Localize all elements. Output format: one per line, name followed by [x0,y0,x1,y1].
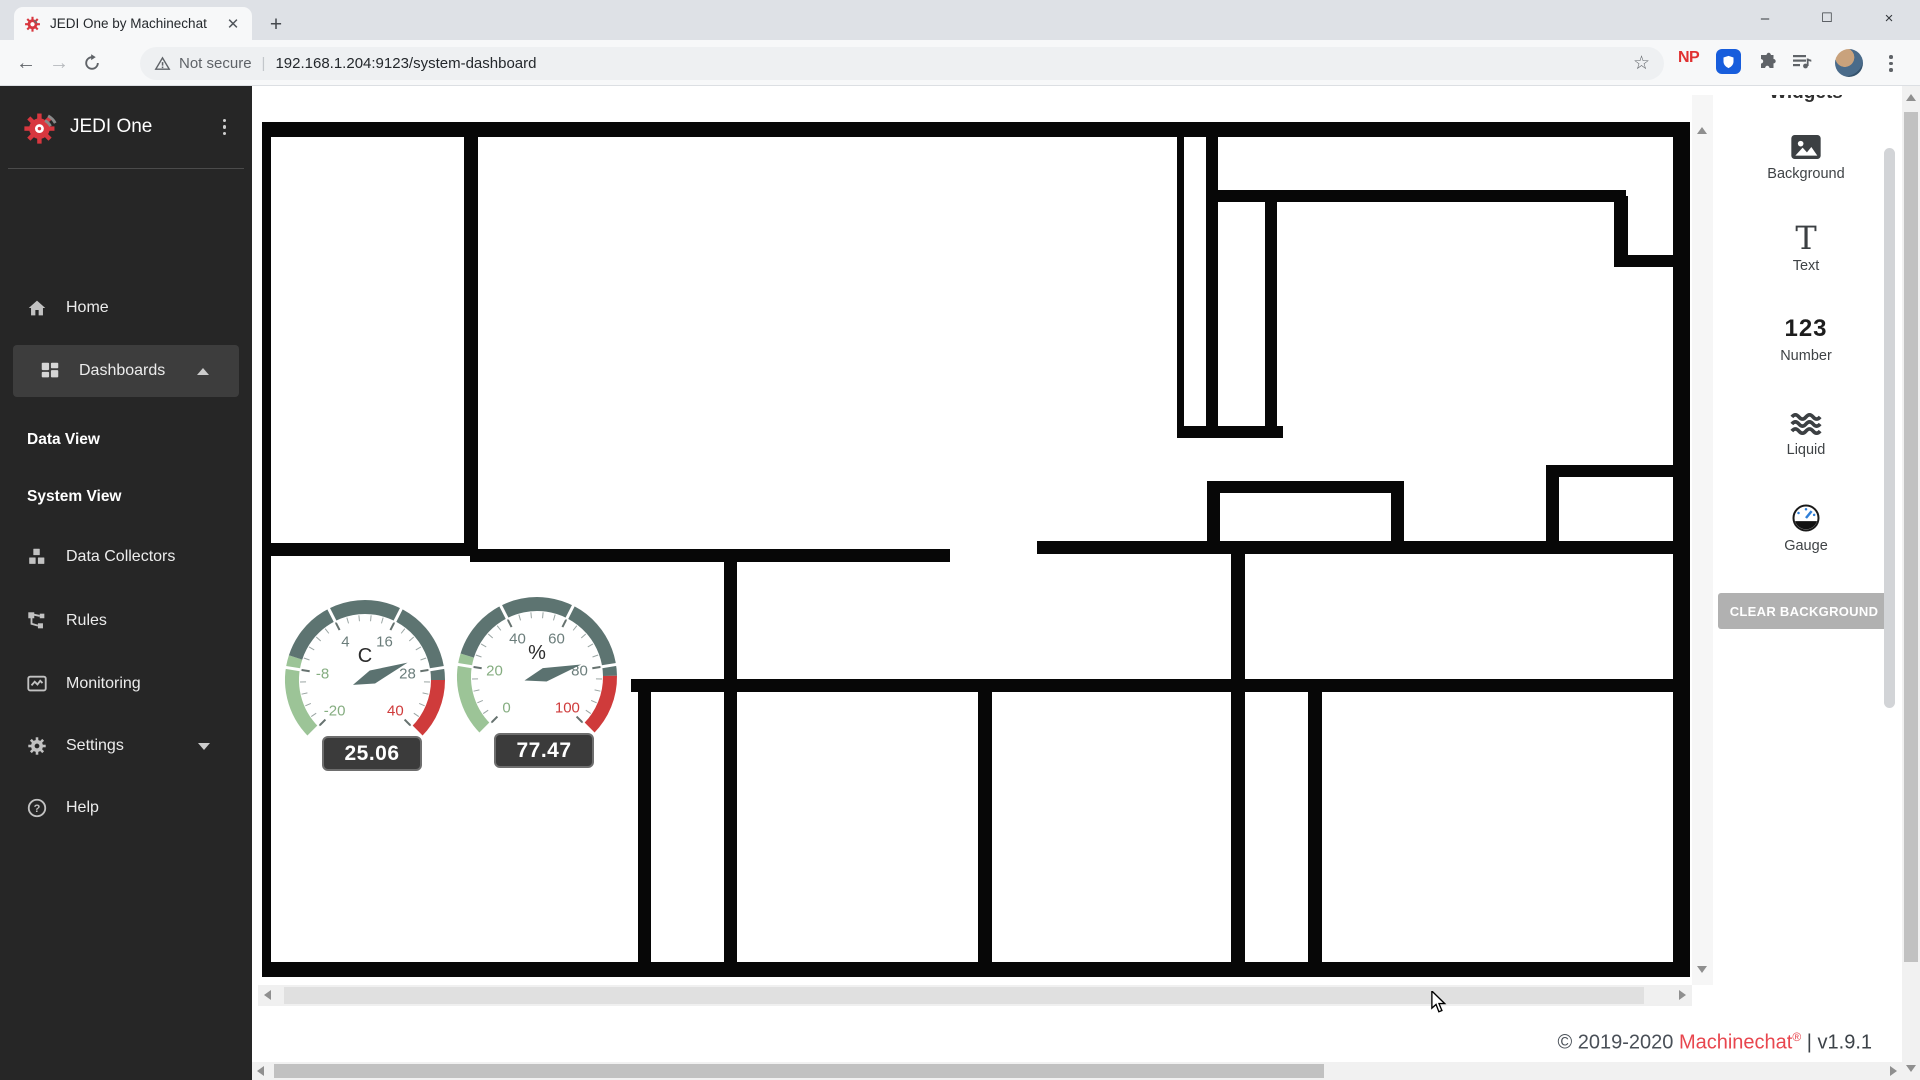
svg-text:28: 28 [399,665,416,682]
sidebar-item-label: Settings [66,737,124,755]
svg-text:C: C [358,645,372,667]
sidebar-item-label: Data Collectors [66,548,175,566]
scroll-down-icon[interactable] [1697,966,1707,973]
sidebar-item-label: Rules [66,612,107,630]
app-version: | v1.9.1 [1801,1032,1872,1054]
security-status-label: Not secure [179,55,252,72]
svg-text:-8: -8 [316,665,329,682]
waves-icon [1789,411,1823,437]
page-vertical-scrollbar[interactable] [1902,86,1920,1080]
widgets-panel: Widgets Background T Text 123 Number [1716,95,1896,108]
scroll-right-icon[interactable] [1679,990,1686,1000]
minimize-button[interactable]: – [1734,10,1796,27]
scroll-down-icon[interactable] [1906,1065,1916,1072]
scroll-up-icon[interactable] [1906,94,1916,101]
url-text[interactable]: 192.168.1.204:9123/system-dashboard [275,55,536,72]
rules-flow-icon [24,610,50,632]
app-name: JEDI One [70,116,152,138]
canvas-horizontal-scrollbar[interactable] [258,985,1692,1006]
not-secure-warning-icon[interactable] [154,55,171,72]
widget-gauge[interactable]: Gauge [1716,503,1896,554]
browser-titlebar: JEDI One by Machinechat ✕ + – ☐ × [0,0,1920,40]
shield-extension-icon[interactable] [1716,49,1741,74]
number-icon: 123 [1716,315,1896,343]
sidebar-menu-kebab-icon[interactable] [223,119,227,136]
widget-text[interactable]: T Text [1716,223,1896,274]
canvas-vertical-scrollbar[interactable] [1692,95,1713,985]
jedi-one-logo-gear-icon [22,108,60,146]
floorplan-background-image [258,95,1692,985]
forward-icon[interactable]: → [45,49,73,77]
jedi-one-favicon-gear-icon [24,15,41,32]
sidebar-divider [8,168,244,169]
browser-window: JEDI One by Machinechat ✕ + – ☐ × ← → [0,0,1920,1080]
footer-copyright: © 2019-2020 Machinechat® | v1.9.1 [1557,1030,1872,1055]
sidebar-item-settings[interactable]: Settings [0,722,252,770]
dashboard-canvas[interactable]: -20-84162840C 020406080100% 25.06 77.47 … [252,86,1902,1080]
reload-icon[interactable] [78,49,106,77]
home-icon [24,297,50,319]
svg-text:60: 60 [548,631,565,648]
sidebar-item-monitoring[interactable]: Monitoring [0,660,252,708]
maximize-button[interactable]: ☐ [1796,10,1858,26]
address-bar[interactable]: Not secure | 192.168.1.204:9123/system-d… [140,47,1664,80]
sidebar-item-dashboards[interactable]: Dashboards [13,345,239,397]
scrollbar-thumb[interactable] [1904,112,1918,962]
sidebar-item-data-view[interactable]: Data View [0,416,252,464]
sidebar-item-label: Help [66,799,99,817]
svg-text:16: 16 [376,634,393,651]
page-horizontal-scrollbar[interactable] [252,1062,1902,1080]
widget-background[interactable]: Background [1716,133,1896,182]
scrollbar-thumb[interactable] [274,1064,1324,1078]
temperature-gauge-value: 25.06 [322,736,422,771]
text-icon: T [1716,223,1896,253]
widget-label: Background [1716,166,1896,182]
gear-icon [24,735,50,757]
widget-number[interactable]: 123 Number [1716,315,1896,364]
browser-toolbar: ← → Not secure | 192.168.1.204:9123/syst… [0,40,1920,86]
playlist-music-icon[interactable] [1790,49,1814,73]
monitoring-icon [24,673,50,695]
machinechat-brand-link[interactable]: Machinechat [1679,1032,1792,1054]
svg-text:4: 4 [341,634,349,651]
tab-title: JEDI One by Machinechat [50,16,224,31]
dashboard-grid-icon [37,360,63,382]
gauge-icon [1791,503,1821,533]
cubes-icon [24,546,50,568]
humidity-gauge-value: 77.47 [494,733,594,768]
registered-mark: ® [1792,1030,1801,1044]
image-icon [1790,133,1822,161]
help-icon: ? [24,797,50,819]
widget-label: Gauge [1716,538,1896,554]
sidebar-item-data-collectors[interactable]: Data Collectors [0,533,252,581]
chevron-up-icon [197,368,209,375]
svg-text:100: 100 [555,699,580,716]
window-close-button[interactable]: × [1858,10,1920,27]
svg-text:20: 20 [486,662,503,679]
new-tab-button[interactable]: + [264,14,288,38]
extensions-puzzle-icon[interactable] [1754,49,1778,73]
sidebar-item-label: Monitoring [66,675,141,693]
svg-text:-20: -20 [324,702,346,719]
profile-avatar[interactable] [1835,49,1863,77]
sidebar-item-label: Dashboards [79,362,165,380]
browser-menu-kebab-icon[interactable] [1882,55,1900,72]
sidebar-item-system-view[interactable]: System View [0,473,252,521]
mouse-cursor [1428,991,1448,1013]
sidebar-item-rules[interactable]: Rules [0,597,252,645]
chevron-down-icon [198,743,210,750]
np-extension-icon[interactable]: NP [1678,49,1699,67]
widgets-panel-scrollbar-thumb[interactable] [1884,148,1895,708]
bookmark-star-icon[interactable]: ☆ [1633,52,1650,75]
sidebar: JEDI One Home Dashboards [0,86,252,1080]
scroll-right-icon[interactable] [1890,1066,1897,1076]
svg-text:%: % [528,642,546,664]
scroll-left-icon[interactable] [257,1066,264,1076]
svg-text:0: 0 [502,699,510,716]
widget-label: Liquid [1716,442,1896,458]
sidebar-item-label: Home [66,299,109,317]
widgets-panel-title: Widgets [1716,95,1896,108]
svg-text:?: ? [34,803,41,815]
scroll-left-icon[interactable] [264,990,271,1000]
sidebar-item-help[interactable]: ? Help [0,784,252,832]
omnibox-separator: | [262,55,266,72]
clear-background-button[interactable]: CLEAR BACKGROUND [1718,593,1890,629]
svg-text:40: 40 [509,631,526,648]
window-controls: – ☐ × [1734,0,1920,36]
browser-tab[interactable]: JEDI One by Machinechat ✕ [14,7,252,40]
widget-label: Number [1716,348,1896,364]
tab-close-icon[interactable]: ✕ [224,15,242,33]
sidebar-item-home[interactable]: Home [0,284,252,332]
svg-text:40: 40 [387,702,404,719]
widget-liquid[interactable]: Liquid [1716,411,1896,458]
back-icon[interactable]: ← [12,49,40,77]
widget-label: Text [1716,258,1896,274]
sidebar-header: JEDI One [0,104,252,150]
scroll-up-icon[interactable] [1697,127,1707,134]
